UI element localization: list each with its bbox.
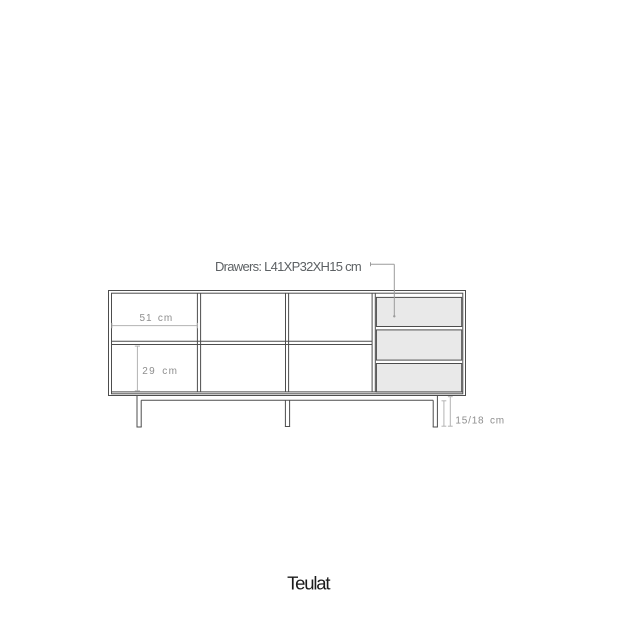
svg-text:Drawers: L41XP32XH15 cm: Drawers: L41XP32XH15 cm bbox=[215, 259, 361, 274]
svg-text:51 cm: 51 cm bbox=[140, 313, 174, 324]
svg-text:29 cm: 29 cm bbox=[142, 366, 178, 377]
svg-text:15/18 cm: 15/18 cm bbox=[455, 416, 505, 427]
svg-text:Teulat: Teulat bbox=[287, 573, 330, 594]
